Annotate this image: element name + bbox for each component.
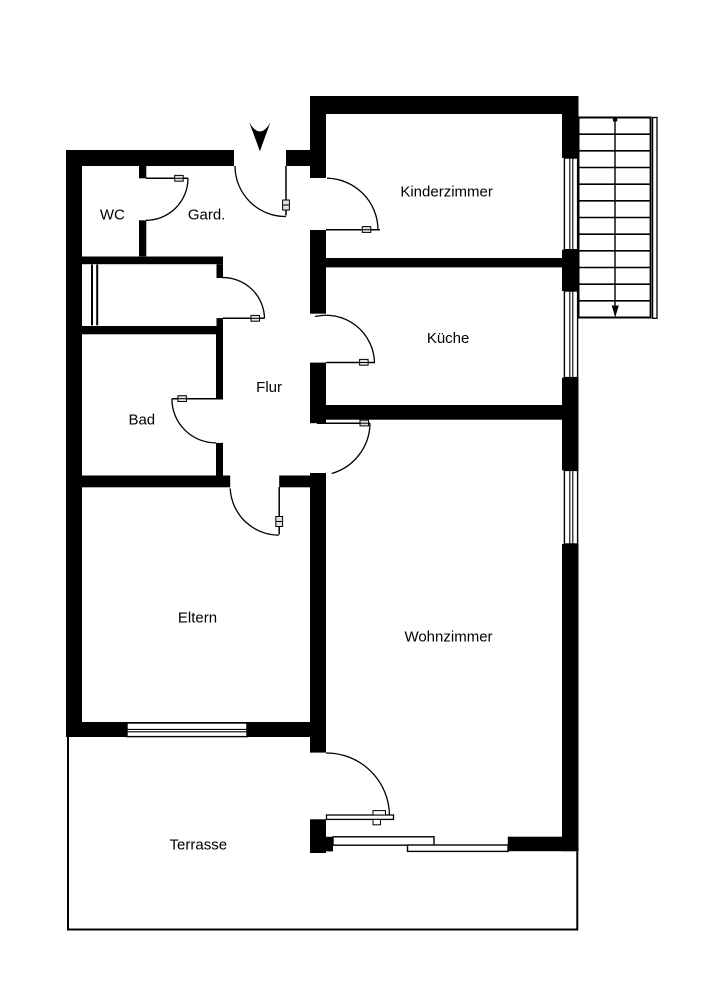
- svg-text:Bad: Bad: [128, 412, 155, 429]
- svg-text:Gard.: Gard.: [188, 207, 226, 224]
- svg-text:Küche: Küche: [427, 330, 470, 347]
- svg-text:Wohnzimmer: Wohnzimmer: [404, 629, 492, 646]
- svg-text:Eltern: Eltern: [178, 610, 217, 627]
- svg-text:Kinderzimmer: Kinderzimmer: [400, 184, 493, 201]
- svg-text:Flur: Flur: [256, 379, 282, 396]
- svg-text:WC: WC: [100, 207, 125, 224]
- svg-text:Terrasse: Terrasse: [170, 837, 228, 854]
